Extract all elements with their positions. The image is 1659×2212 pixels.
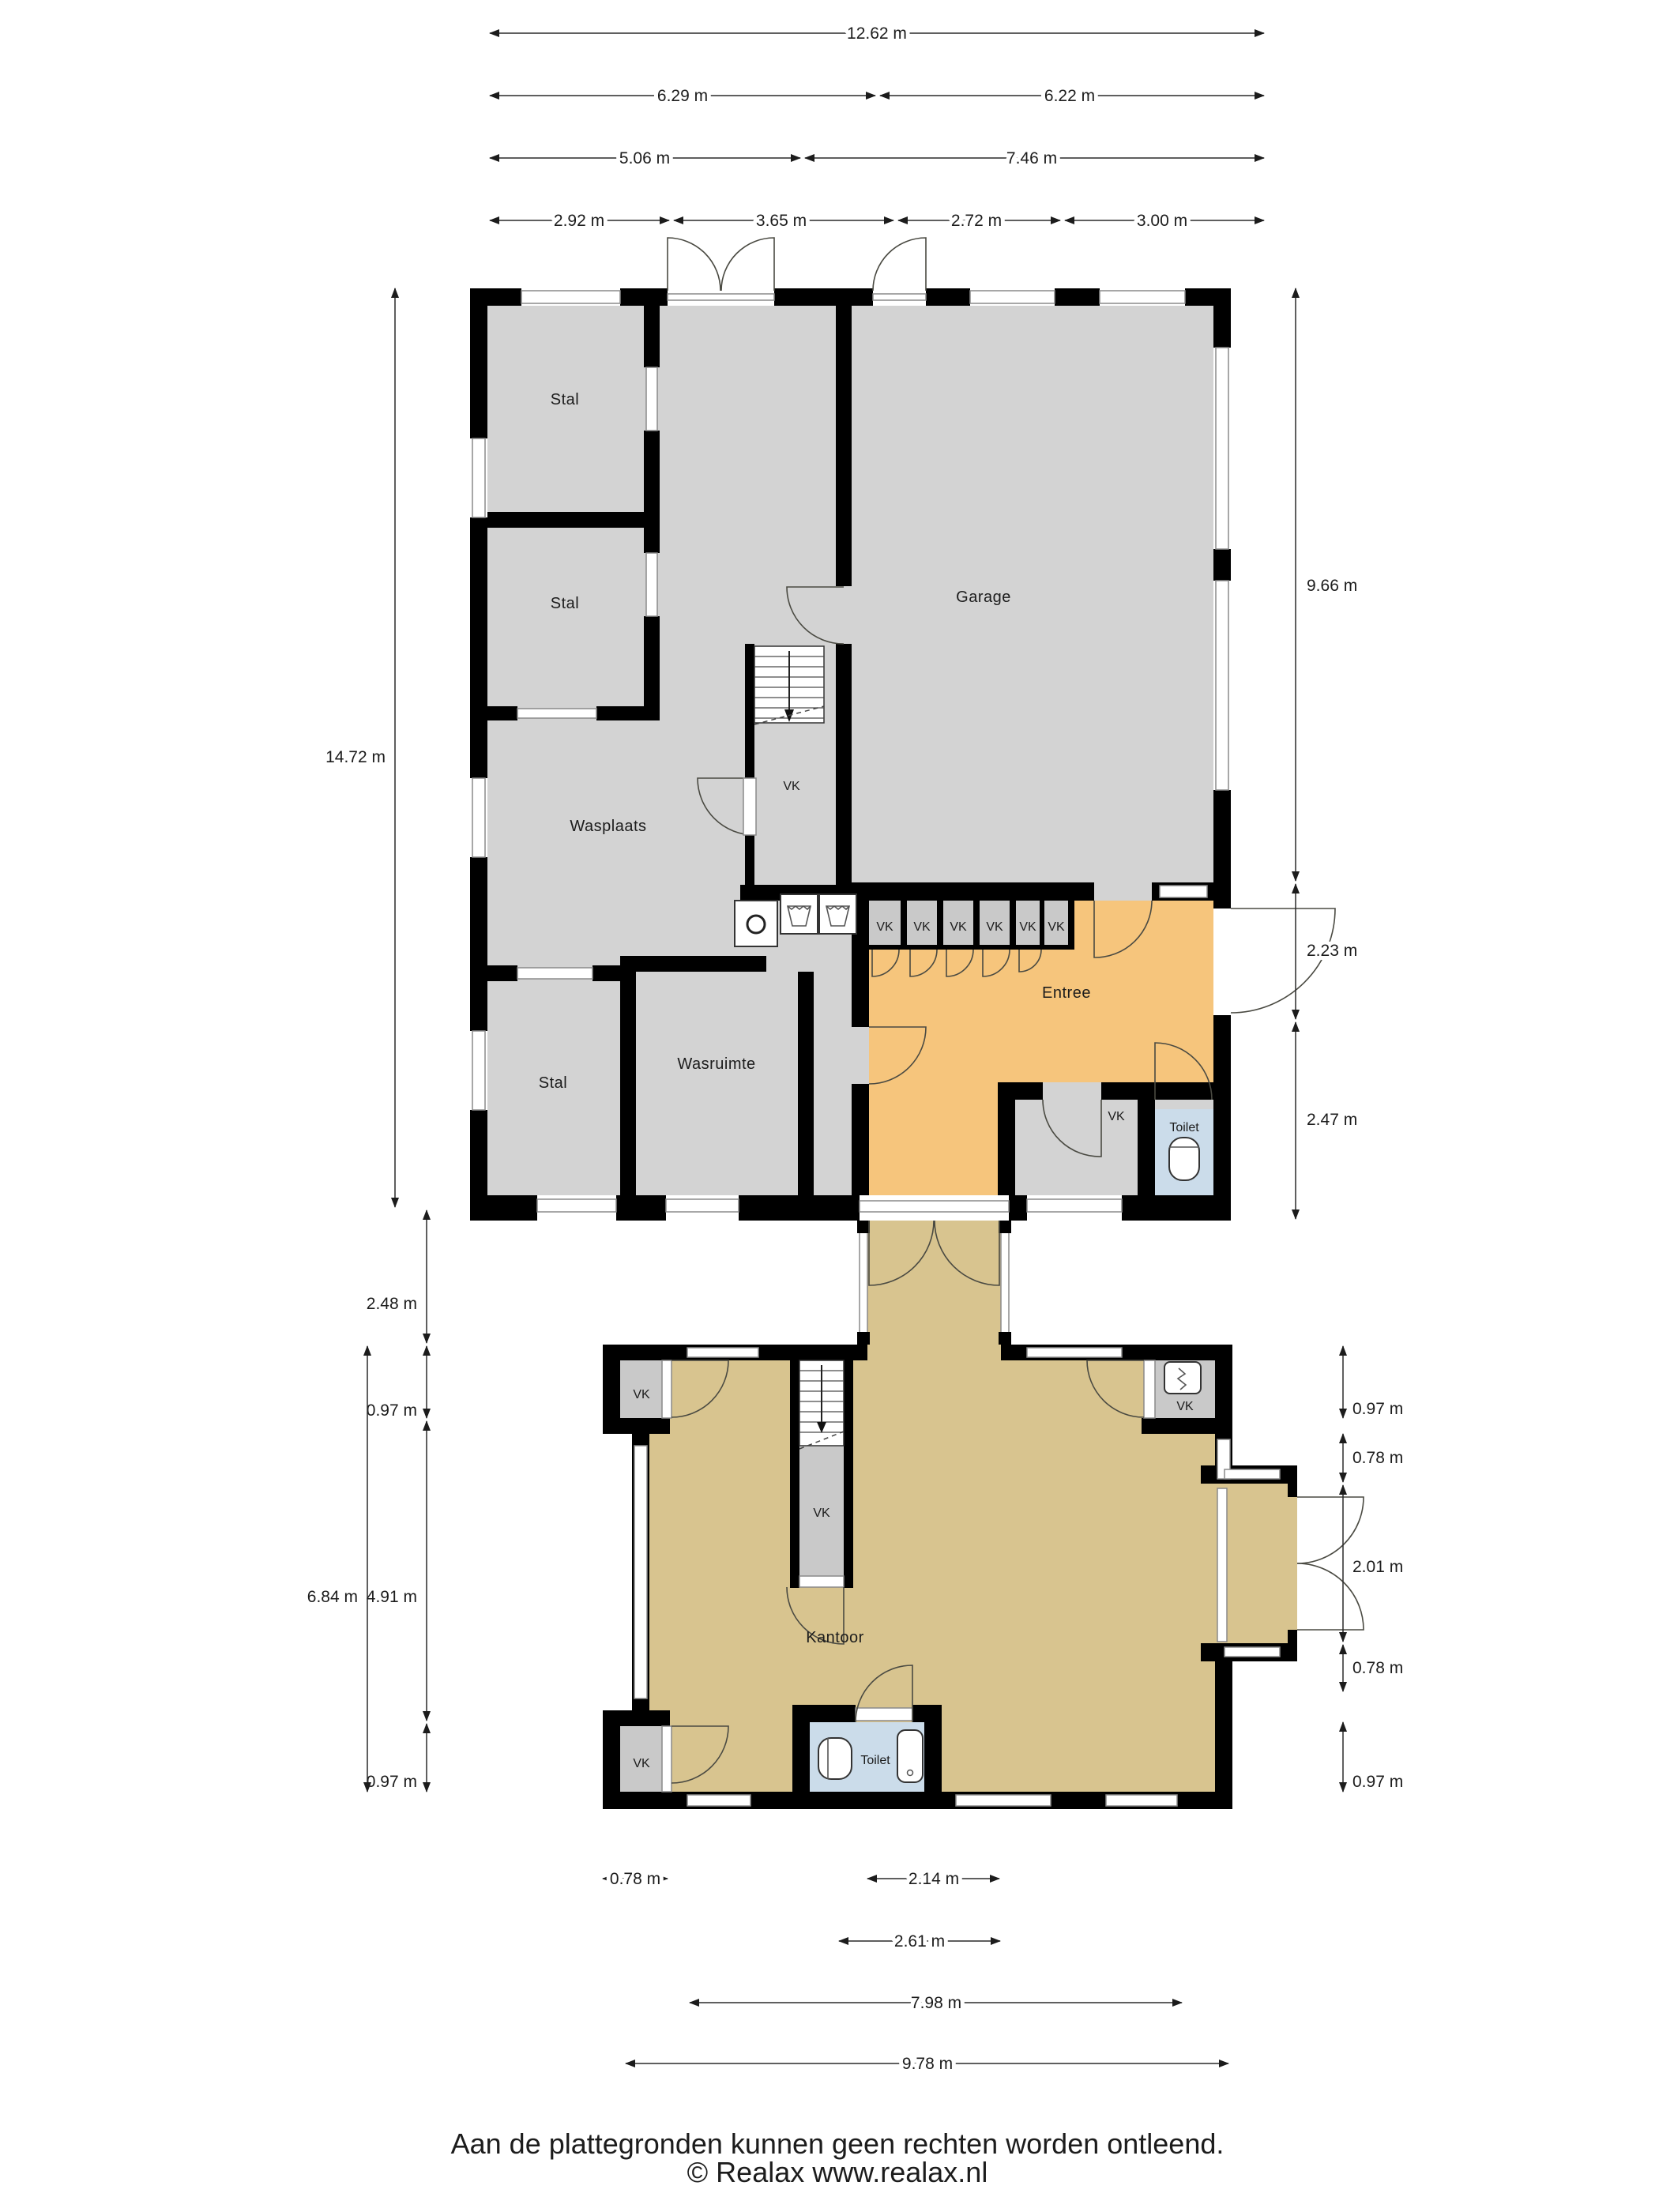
dim-left-684: 6.84 m [307,1588,358,1606]
room-label-stal-3: Stal [539,1074,567,1092]
dim-right-966: 9.66 m [1307,577,1357,595]
upper-building: Stal Stal Stal Garage Wasplaats Wasruimt… [470,238,1335,1221]
room-label-toilet-upper: Toilet [1169,1121,1199,1134]
dim-right-247: 2.47 m [1307,1111,1357,1129]
dim-left-491: 4.91 m [367,1588,417,1606]
dim-bottom-214: 2.14 m [908,1870,959,1888]
room-label-garage: Garage [956,589,1011,606]
closet-label-vk-top-right: VK [1176,1400,1194,1413]
footer-disclaimer: Aan de plattegronden kunnen geen rechten… [451,2127,1224,2160]
closet-label-vk-stairs-upper: VK [783,780,800,793]
dim-bottom-261: 2.61 m [894,1932,945,1951]
stairs-lower [799,1360,844,1449]
closet-label-vk-6: VK [1048,920,1065,934]
closet-label-vk-stairs-lower: VK [813,1507,830,1520]
footer-copyright: © Realax www.realax.nl [687,2156,988,2188]
dim-bottom-978: 9.78 m [902,2055,953,2073]
sink-icon-vk-top-right [1164,1362,1201,1394]
dim-right-097b: 0.97 m [1352,1773,1403,1791]
toilet-bowl-icon-lower [818,1738,852,1779]
dim-top-746: 7.46 m [1006,149,1057,167]
dim-top-300: 3.00 m [1137,212,1187,230]
closet-label-vk-2: VK [913,920,931,934]
dim-top-total: 12.62 m [847,24,907,43]
closet-label-vk-4: VK [986,920,1003,934]
closet-label-vk-top-left: VK [633,1388,650,1401]
corridor-floor [867,1221,1001,1360]
dim-top-272: 2.72 m [951,212,1002,230]
dim-left-248: 2.48 m [367,1295,417,1313]
dim-left-097a: 0.97 m [367,1401,417,1420]
closet-label-vk-3: VK [950,920,967,934]
boiler-icon [735,901,777,946]
room-label-entree: Entree [1042,984,1091,1002]
dim-right-223: 2.23 m [1307,942,1357,960]
room-label-stal-1: Stal [551,391,579,408]
dim-top-right-half: 6.22 m [1044,87,1095,105]
room-label-kantoor: Kantoor [806,1629,864,1646]
dim-left-097b: 0.97 m [367,1773,417,1791]
toilet-bowl-icon-upper [1169,1138,1199,1180]
dim-right-078a: 0.78 m [1352,1449,1403,1467]
floor-plan-page: Stal Stal Stal Garage Wasplaats Wasruimt… [0,0,1659,2212]
closet-label-vk-1: VK [876,920,893,934]
corridor [857,1201,1011,1360]
floor-plan-drawing: Stal Stal Stal Garage Wasplaats Wasruimt… [0,0,1659,2212]
dim-bottom-798: 7.98 m [911,1994,961,2012]
dim-left-1472: 14.72 m [325,748,386,766]
closet-label-vk-5: VK [1019,920,1036,934]
dim-bottom-078: 0.78 m [610,1870,660,1888]
dim-top-506: 5.06 m [619,149,670,167]
room-label-wasruimte: Wasruimte [677,1055,755,1073]
dim-top-292: 2.92 m [554,212,604,230]
sink-icon-toilet-lower [897,1730,923,1782]
dim-right-201: 2.01 m [1352,1558,1403,1576]
room-label-wasplaats: Wasplaats [570,818,646,835]
dim-right-097a: 0.97 m [1352,1400,1403,1418]
room-label-stal-2: Stal [551,595,579,612]
washing-machine-icons [781,894,856,934]
dim-top-left-half: 6.29 m [657,87,708,105]
room-label-toilet-lower: Toilet [860,1754,890,1767]
dim-top-365: 3.65 m [756,212,807,230]
closet-label-vk-bottom-left: VK [633,1757,650,1770]
room-label-vk-upper: VK [1108,1110,1125,1123]
dim-right-078b: 0.78 m [1352,1659,1403,1677]
